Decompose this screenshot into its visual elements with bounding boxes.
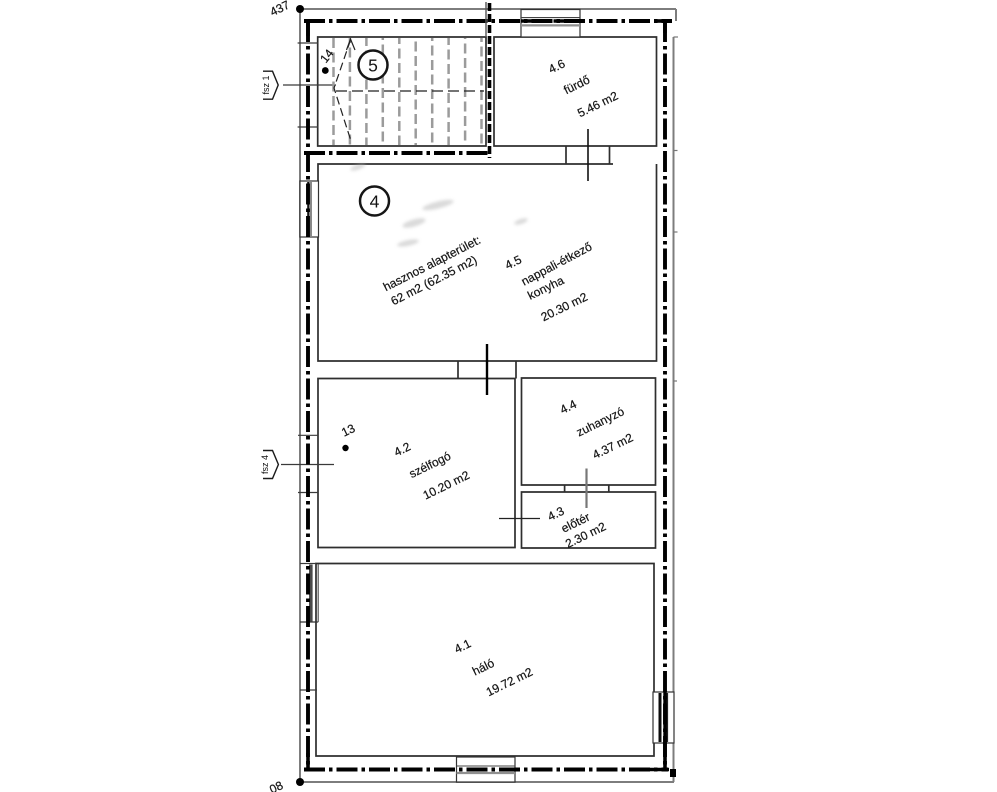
svg-text:fsz 4: fsz 4 [260, 455, 270, 474]
svg-text:4: 4 [370, 192, 380, 212]
svg-text:5: 5 [368, 56, 378, 76]
svg-text:fsz 1: fsz 1 [261, 75, 271, 94]
